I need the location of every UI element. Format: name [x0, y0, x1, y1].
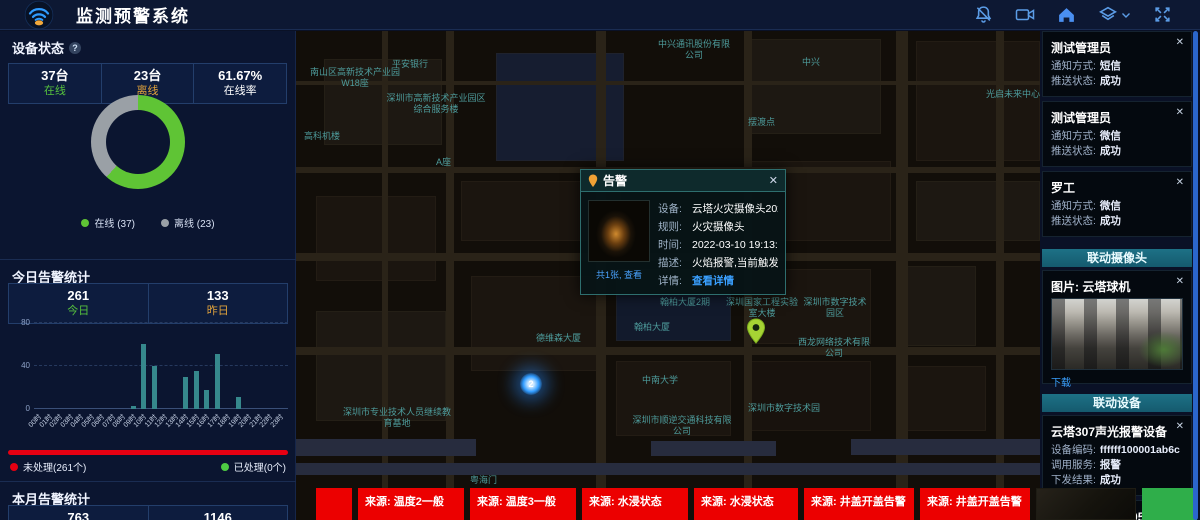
popup-row-label: 时间: [658, 236, 692, 254]
map-highway [851, 439, 1040, 455]
map-label: 深圳市专业技术人员继续教育基地 [340, 407, 454, 429]
card-row-value: 成功 [1100, 215, 1121, 227]
card-row-value: 微信 [1100, 200, 1121, 212]
video-thumbnail-dark[interactable] [1036, 488, 1136, 520]
card-row: 推送状态:成功 [1051, 214, 1183, 229]
stat-label: 在线率 [196, 84, 284, 98]
card-row-label: 推送状态: [1051, 145, 1096, 157]
card-row-value: ffffff100001ab6c [1100, 444, 1180, 456]
popup-row-label: 规则: [658, 218, 692, 236]
card-title: 测试管理员 [1051, 109, 1183, 126]
muted-bell-icon[interactable] [974, 5, 993, 24]
legend-text: 离线 (23) [174, 215, 215, 230]
help-icon[interactable]: ? [69, 42, 81, 54]
map-label: 深圳市数字技术园 [748, 403, 820, 414]
card-row-label: 设备编码: [1051, 444, 1096, 456]
card-row: 通知方式:短信 [1051, 59, 1183, 74]
card-title: 云塔307声光报警设备 [1051, 423, 1183, 440]
linked-device-header: 联动设备 [1042, 394, 1192, 412]
stat-label: 今日 [11, 304, 146, 318]
camera-card-title: 图片: 云塔球机 [1051, 278, 1183, 295]
alert-strip: 来源: 温度2一般来源: 温度3一般来源: 水浸状态来源: 水浸状态来源: 井盖… [296, 488, 1200, 520]
video-camera-icon[interactable] [1015, 5, 1035, 24]
card-row-label: 调用服务: [1051, 459, 1096, 471]
legend-item: 离线 (23) [161, 215, 215, 230]
hourly-alarm-chart: 0 40 80 00时01时02时03时04时05时06时07时08时09时10… [0, 323, 296, 409]
linked-device-card: ✕云塔307声光报警设备设备编码:ffffff100001ab6c调用服务:报警… [1042, 415, 1192, 496]
stat-cell: 61.67%在线率 [194, 64, 286, 103]
stat-value: 261 [11, 288, 146, 304]
fullscreen-icon[interactable] [1153, 5, 1172, 24]
camera-snapshot-image[interactable] [1051, 298, 1183, 370]
linked-camera-header: 联动摄像头 [1042, 249, 1192, 267]
alert-popup-header: 告警 ✕ [581, 170, 785, 192]
alert-source-box[interactable]: 来源: 水浸状态 [582, 488, 688, 520]
map-label: 西龙网络技术有限公司 [796, 337, 872, 359]
map-building [316, 311, 446, 421]
left-panel: 设备状态 ? 37台在线23台离线61.67%在线率 在线 (37)离线 (23… [0, 31, 296, 520]
progress-legend: 未处理(261个) 已处理(0个) [0, 459, 296, 474]
card-row: 下发结果:成功 [1051, 473, 1183, 488]
card-title: 测试管理员 [1051, 39, 1183, 56]
card-row: 调用服务:报警 [1051, 458, 1183, 473]
device-status-title: 设备状态 ? [0, 31, 295, 61]
card-row-label: 下发结果: [1051, 474, 1096, 486]
card-title: 罗工 [1051, 179, 1183, 196]
map-building [916, 181, 1040, 241]
download-link[interactable]: 下载 [1051, 374, 1071, 389]
hourly-bar [215, 354, 220, 409]
device-donut [91, 95, 185, 189]
map-label: 深圳国家工程实验室大楼 [722, 297, 802, 319]
app-logo-icon [24, 0, 54, 30]
map-highway [296, 439, 476, 456]
map-label: 翰柏大厦 [634, 322, 670, 333]
legend-dot [161, 219, 169, 227]
notification-list: ✕测试管理员通知方式:短信推送状态:成功✕测试管理员通知方式:微信推送状态:成功… [1042, 31, 1192, 237]
location-pin-icon[interactable] [746, 318, 766, 350]
map-label: 中兴通讯股份有限公司 [658, 39, 730, 61]
map-label: A座 [436, 157, 451, 168]
dashboard: 监测预警系统 [0, 0, 1200, 520]
popup-row-value: 2022-03-10 19:13:07 [692, 236, 778, 254]
popup-row-label: 描述: [658, 254, 692, 272]
alert-popup-rows: 设备:云塔火灾摄像头202规则:火灾摄像头时间:2022-03-10 19:13… [658, 200, 778, 290]
card-row-value: 成功 [1100, 75, 1121, 87]
video-thumbnail-green[interactable] [1142, 488, 1197, 520]
map-label: 粤海门 [470, 475, 497, 486]
map-highway [651, 441, 776, 456]
card-row-value: 短信 [1100, 60, 1121, 72]
map-building [751, 361, 871, 431]
map-building [896, 266, 976, 346]
y-tick: 0 [16, 404, 30, 413]
alert-source-box[interactable]: 来源: 温度2一般 [358, 488, 464, 520]
hourly-bar [194, 371, 199, 409]
close-icon[interactable]: ✕ [769, 174, 778, 187]
popup-row-value: 火灾摄像头 [692, 218, 745, 236]
stat-cell: 133昨日 [149, 284, 288, 323]
notification-card: ✕测试管理员通知方式:短信推送状态:成功 [1042, 31, 1192, 97]
stat-label: 昨日 [151, 304, 286, 318]
popup-row-value: 云塔火灾摄像头202 [692, 200, 778, 218]
close-icon[interactable]: ✕ [1176, 177, 1184, 188]
map-highway [296, 463, 1040, 475]
hourly-bar [183, 377, 188, 409]
handled-label: 已处理(0个) [234, 459, 286, 474]
map-label: 摆渡点 [748, 117, 775, 128]
close-icon[interactable]: ✕ [1176, 421, 1184, 432]
home-icon[interactable] [1057, 5, 1076, 24]
stat-cell: 37台在线 [9, 64, 102, 103]
map-label: 深圳市顺逆交通科技有限公司 [630, 415, 734, 437]
stat-value: 37台 [11, 68, 99, 84]
unhandled-dot [10, 463, 18, 471]
card-row-label: 通知方式: [1051, 130, 1096, 142]
card-row: 通知方式:微信 [1051, 129, 1183, 144]
map-label: 深圳市数字技术园区 [802, 297, 868, 319]
popup-row: 时间:2022-03-10 19:13:07 [658, 236, 778, 254]
close-icon[interactable]: ✕ [1176, 276, 1184, 287]
card-row-label: 推送状态: [1051, 75, 1096, 87]
camera-snapshot-card: ✕ 图片: 云塔球机 下载 [1042, 270, 1192, 384]
card-row-value: 微信 [1100, 130, 1121, 142]
right-panel-scrollbar[interactable] [1193, 31, 1198, 520]
stat-value: 133 [151, 288, 286, 304]
unhandled-label: 未处理(261个) [23, 459, 86, 474]
detail-link[interactable]: 查看详情 [692, 272, 734, 290]
notification-card: ✕罗工通知方式:微信推送状态:成功 [1042, 171, 1192, 237]
card-row: 通知方式:微信 [1051, 199, 1183, 214]
top-header: 监测预警系统 [0, 0, 1200, 30]
popup-row-label: 详情: [658, 272, 692, 290]
stat-value: 763 [11, 510, 146, 520]
hourly-bar [236, 397, 241, 409]
popup-row: 设备:云塔火灾摄像头202 [658, 200, 778, 218]
alert-popup: 告警 ✕ 共1张, 查看 设备:云塔火灾摄像头202规则:火灾摄像头时间:202… [580, 169, 786, 295]
card-row-value: 成功 [1100, 145, 1121, 157]
close-icon[interactable]: ✕ [1176, 107, 1184, 118]
card-row-label: 通知方式: [1051, 60, 1096, 72]
map-label: 高科机楼 [304, 131, 340, 142]
map-canvas[interactable]: 2 告警 ✕ 共1张, 查看 设备:云塔火灾摄像头202规则:火灾摄像头时间:2… [296, 31, 1040, 520]
stat-value: 1146 [151, 510, 286, 520]
popup-row-value: 火焰报警,当前触发值为... [692, 254, 778, 272]
map-label: 中南大学 [642, 375, 678, 386]
map-label: 南山区高新技术产业园W18座 [310, 67, 400, 89]
stat-cell: 763 [9, 506, 149, 520]
alert-snapshot-image[interactable] [588, 200, 650, 262]
map-building [896, 366, 986, 431]
stat-cell: 1146 [149, 506, 288, 520]
layers-icon[interactable] [1098, 5, 1131, 24]
map-label: 翰柏大厦2期 [660, 297, 710, 308]
page-title: 监测预警系统 [76, 2, 190, 27]
chevron-down-icon [1121, 11, 1131, 19]
snapshot-view-link[interactable]: 共1张, 查看 [588, 268, 650, 281]
popup-row-label: 设备: [658, 200, 692, 218]
map-building [316, 196, 436, 281]
stat-value: 61.67% [196, 68, 284, 84]
map-road [296, 81, 1040, 85]
legend-text: 在线 (37) [94, 215, 135, 230]
hourly-bar [131, 406, 136, 409]
popup-row: 详情:查看详情 [658, 272, 778, 290]
stat-value: 23台 [104, 68, 192, 84]
device-legend: 在线 (37)离线 (23) [0, 215, 296, 230]
card-row: 推送状态:成功 [1051, 74, 1183, 89]
alert-source-box[interactable]: 来源: 井盖开盖告警 [804, 488, 914, 520]
handled-dot [221, 463, 229, 471]
y-tick: 80 [16, 318, 30, 327]
legend-item: 在线 (37) [81, 215, 135, 230]
popup-row: 规则:火灾摄像头 [658, 218, 778, 236]
map-building [916, 41, 1040, 161]
hourly-bar [141, 344, 146, 409]
alert-pin-icon [588, 174, 598, 188]
popup-row: 描述:火焰报警,当前触发值为... [658, 254, 778, 272]
close-icon[interactable]: ✕ [1176, 37, 1184, 48]
notification-card: ✕测试管理员通知方式:微信推送状态:成功 [1042, 101, 1192, 167]
alert-source-box[interactable]: 来源: 温度3一般 [470, 488, 576, 520]
unhandled-progress-bar [8, 450, 288, 455]
alert-popup-title: 告警 [603, 172, 627, 189]
legend-dot [81, 219, 89, 227]
right-panel: ✕测试管理员通知方式:短信推送状态:成功✕测试管理员通知方式:微信推送状态:成功… [1042, 31, 1192, 520]
card-row-value: 报警 [1100, 459, 1121, 471]
month-stats: 7631146 [8, 505, 288, 520]
map-label: 光启未来中心 [986, 89, 1040, 100]
today-stats: 261今日133昨日 [8, 283, 288, 324]
alert-source-box[interactable]: 来源: 水浸状态 [694, 488, 798, 520]
card-row: 推送状态:成功 [1051, 144, 1183, 159]
map-label: 德维森大厦 [536, 333, 581, 344]
map-road [296, 347, 1040, 355]
card-row: 设备编码:ffffff100001ab6c [1051, 443, 1183, 458]
hourly-bar [152, 366, 157, 409]
card-row-label: 通知方式: [1051, 200, 1096, 212]
card-row-value: 成功 [1100, 474, 1121, 486]
hourly-bar [204, 390, 209, 409]
map-label: 中兴 [802, 57, 820, 68]
card-row-label: 推送状态: [1051, 215, 1096, 227]
alert-source-box[interactable] [316, 488, 352, 520]
y-tick: 40 [16, 361, 30, 370]
stat-label: 在线 [11, 84, 99, 98]
alert-source-box[interactable]: 来源: 井盖开盖告警 [920, 488, 1030, 520]
map-label: 深圳市高新技术产业园区综合服务楼 [386, 93, 486, 115]
device-cluster-marker[interactable]: 2 [520, 373, 542, 395]
